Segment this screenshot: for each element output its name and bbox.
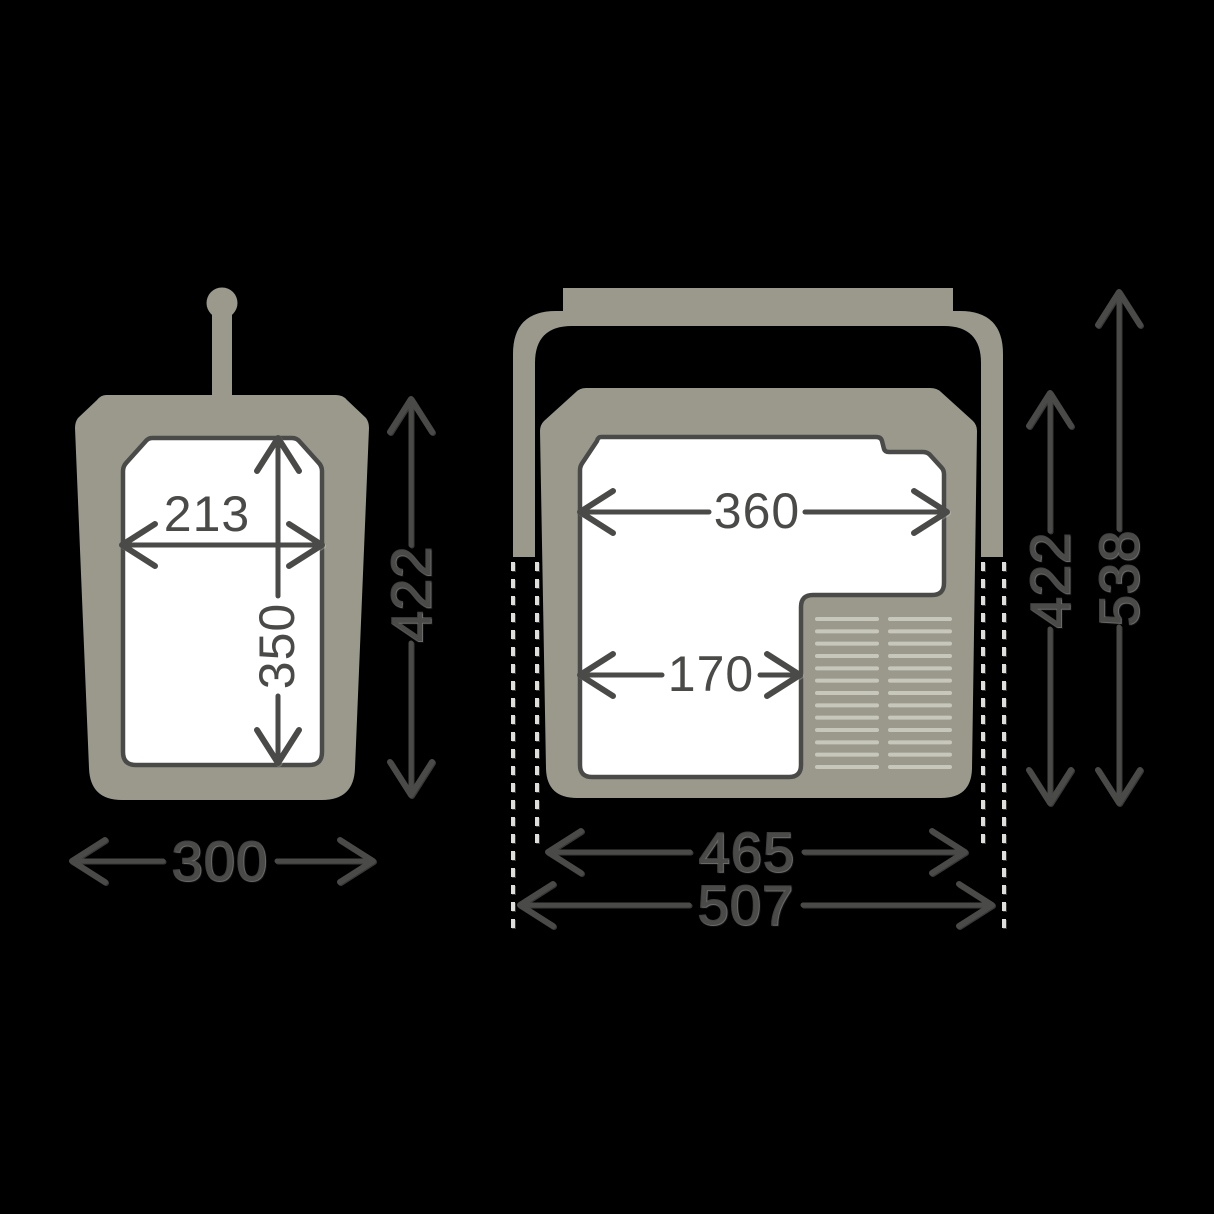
dim-front-body-height: 422 [1019, 393, 1082, 803]
dim-side-outer-height: 422 [380, 399, 443, 795]
dim-label-350: 350 [249, 603, 305, 689]
dimension-diagram-canvas: 213 350 422 [0, 0, 1214, 1214]
handle-stem-side [212, 300, 232, 400]
dim-label-360: 360 [714, 483, 800, 539]
dim-label-213: 213 [164, 486, 250, 542]
dim-front-compartment-width: 170 [580, 646, 800, 702]
dim-label-507: 507 [698, 874, 794, 937]
cooler-dimension-diagram: 213 350 422 [0, 0, 1214, 1214]
dim-label-422-front: 422 [1019, 532, 1082, 628]
dim-label-170: 170 [668, 646, 754, 702]
dim-label-538: 538 [1088, 530, 1151, 626]
dim-side-outer-width: 300 [72, 830, 373, 893]
dim-label-422-side: 422 [380, 546, 443, 642]
side-view: 213 350 422 [72, 288, 443, 893]
dim-label-300: 300 [172, 830, 268, 893]
dim-front-overall-width: 507 [520, 874, 992, 937]
front-view: 360 170 465 [513, 288, 1151, 937]
dim-front-overall-height: 538 [1088, 292, 1151, 803]
